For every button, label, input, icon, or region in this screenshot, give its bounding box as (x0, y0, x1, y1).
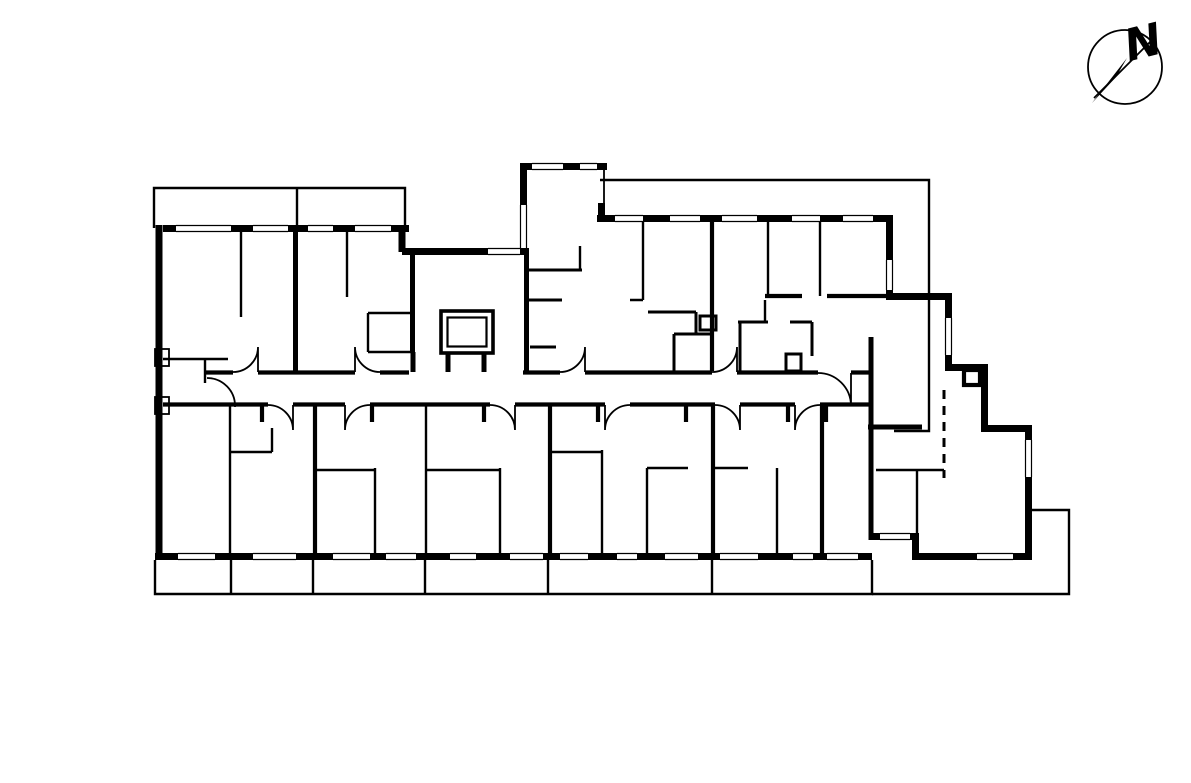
paper-background (0, 0, 1191, 783)
floor-plan-page: N (0, 0, 1191, 783)
floor-plan-canvas: N (0, 0, 1191, 783)
elevator-shaft (441, 311, 493, 353)
